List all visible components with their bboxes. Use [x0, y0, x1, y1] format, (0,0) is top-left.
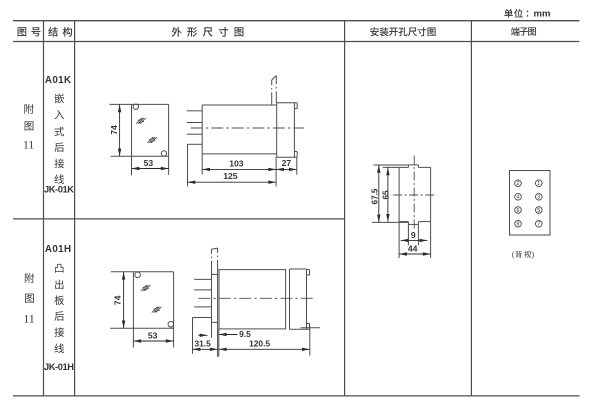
svg-text:31.5: 31.5	[194, 339, 211, 349]
svg-text:JK-01H: JK-01H	[44, 362, 74, 372]
svg-text:A01H: A01H	[45, 244, 72, 255]
svg-text:5: 5	[537, 208, 540, 214]
svg-text:3: 3	[537, 195, 540, 201]
svg-text:74: 74	[113, 295, 123, 305]
svg-text:2: 2	[517, 181, 520, 187]
svg-text:44: 44	[408, 243, 418, 253]
svg-text:53: 53	[148, 330, 158, 340]
svg-text:120.5: 120.5	[249, 338, 270, 348]
svg-text:1: 1	[537, 181, 540, 187]
svg-text:4: 4	[517, 195, 520, 201]
svg-text:9: 9	[411, 230, 416, 240]
svg-text:11: 11	[23, 140, 34, 152]
svg-text:8: 8	[517, 222, 520, 228]
svg-text:11: 11	[24, 314, 35, 326]
svg-text:125: 125	[223, 171, 238, 181]
svg-text:A01K: A01K	[45, 75, 72, 86]
svg-text:7: 7	[537, 222, 540, 228]
svg-text:67.5: 67.5	[371, 188, 380, 204]
svg-text:6: 6	[517, 208, 520, 214]
svg-text:65: 65	[382, 190, 391, 200]
svg-text:27: 27	[282, 158, 292, 168]
svg-text:mm: mm	[534, 9, 551, 20]
svg-text:103: 103	[229, 158, 244, 168]
svg-text:JK-01K: JK-01K	[44, 184, 74, 194]
svg-text:53: 53	[144, 158, 154, 168]
svg-text:74: 74	[109, 125, 119, 135]
